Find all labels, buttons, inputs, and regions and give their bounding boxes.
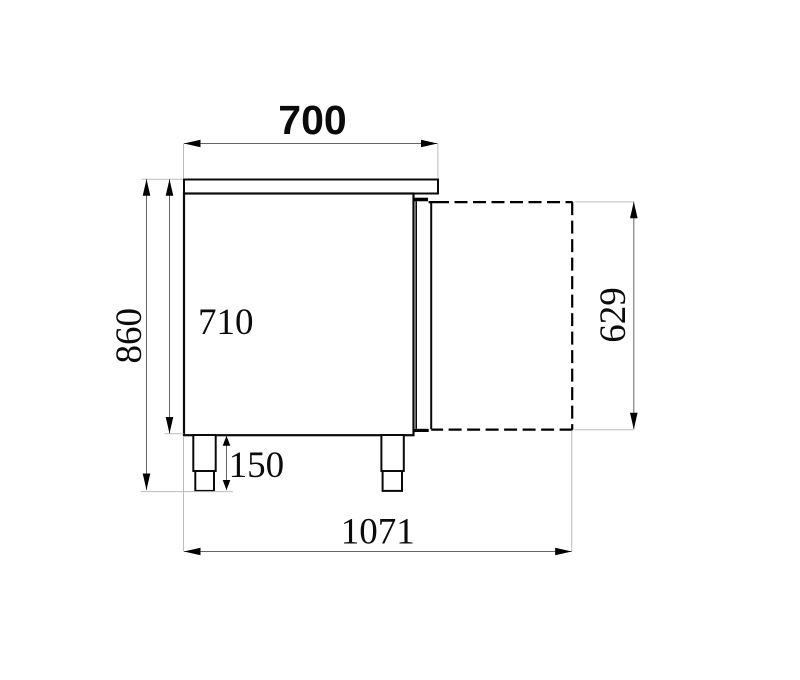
svg-text:710: 710 bbox=[198, 302, 254, 343]
svg-text:700: 700 bbox=[278, 97, 346, 143]
svg-text:1071: 1071 bbox=[341, 512, 415, 553]
svg-text:860: 860 bbox=[109, 308, 150, 364]
svg-text:629: 629 bbox=[593, 287, 634, 343]
svg-text:150: 150 bbox=[229, 445, 285, 486]
